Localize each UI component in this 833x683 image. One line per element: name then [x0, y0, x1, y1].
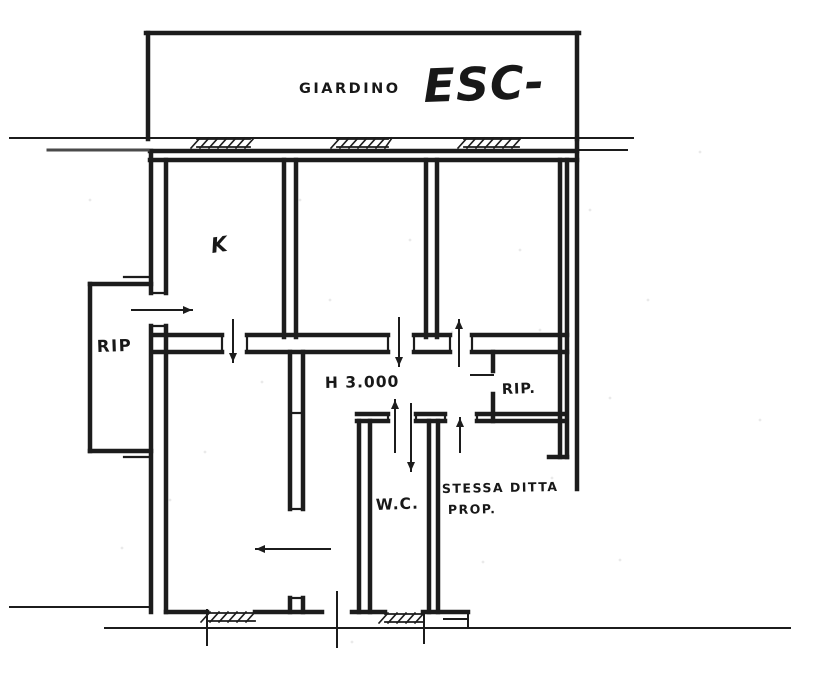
door-arrow-head	[456, 418, 464, 427]
scan-speck	[759, 419, 762, 422]
scan-speck	[409, 239, 412, 242]
label-h-ceiling: H 3.000	[325, 373, 400, 392]
door-arrow-head	[183, 306, 192, 314]
label-wc: W.C.	[376, 495, 420, 514]
door-arrow-head	[395, 357, 403, 366]
scan-speck	[647, 299, 650, 302]
scan-speck	[482, 561, 485, 564]
label-prop: PROP.	[448, 501, 497, 517]
scan-speck	[299, 199, 302, 202]
label-stessa-ditta: STESSA DITTA	[442, 479, 559, 496]
label-rip-left: RIP	[96, 336, 132, 356]
scan-speck	[329, 299, 332, 302]
scan-speck	[519, 249, 522, 252]
door-arrow-head	[455, 320, 463, 329]
scan-speck	[261, 381, 264, 384]
scan-speck	[609, 397, 612, 400]
floor-plan-canvas: GIARDINOESC-KRIPH 3.000RIP.W.C.STESSA DI…	[0, 0, 833, 683]
door-arrow-head	[229, 353, 237, 362]
door-arrow-head	[407, 462, 415, 471]
door-arrow-head	[391, 400, 399, 409]
scan-speck	[619, 559, 622, 562]
label-k: K	[209, 232, 230, 258]
label-giardino: GIARDINO	[299, 81, 401, 97]
label-rip-right: RIP.	[502, 381, 537, 398]
scan-speck	[89, 199, 92, 202]
scan-speck	[169, 499, 172, 502]
scan-speck	[351, 641, 354, 644]
door-arrow-head	[256, 545, 265, 553]
scan-speck	[121, 547, 124, 550]
scan-speck	[204, 451, 207, 454]
scan-speck	[539, 329, 542, 332]
scan-speck	[589, 209, 592, 212]
scanned-floor-plan-page: GIARDINOESC-KRIPH 3.000RIP.W.C.STESSA DI…	[0, 0, 833, 683]
scan-speck	[699, 151, 702, 154]
label-esc: ESC-	[422, 55, 545, 113]
